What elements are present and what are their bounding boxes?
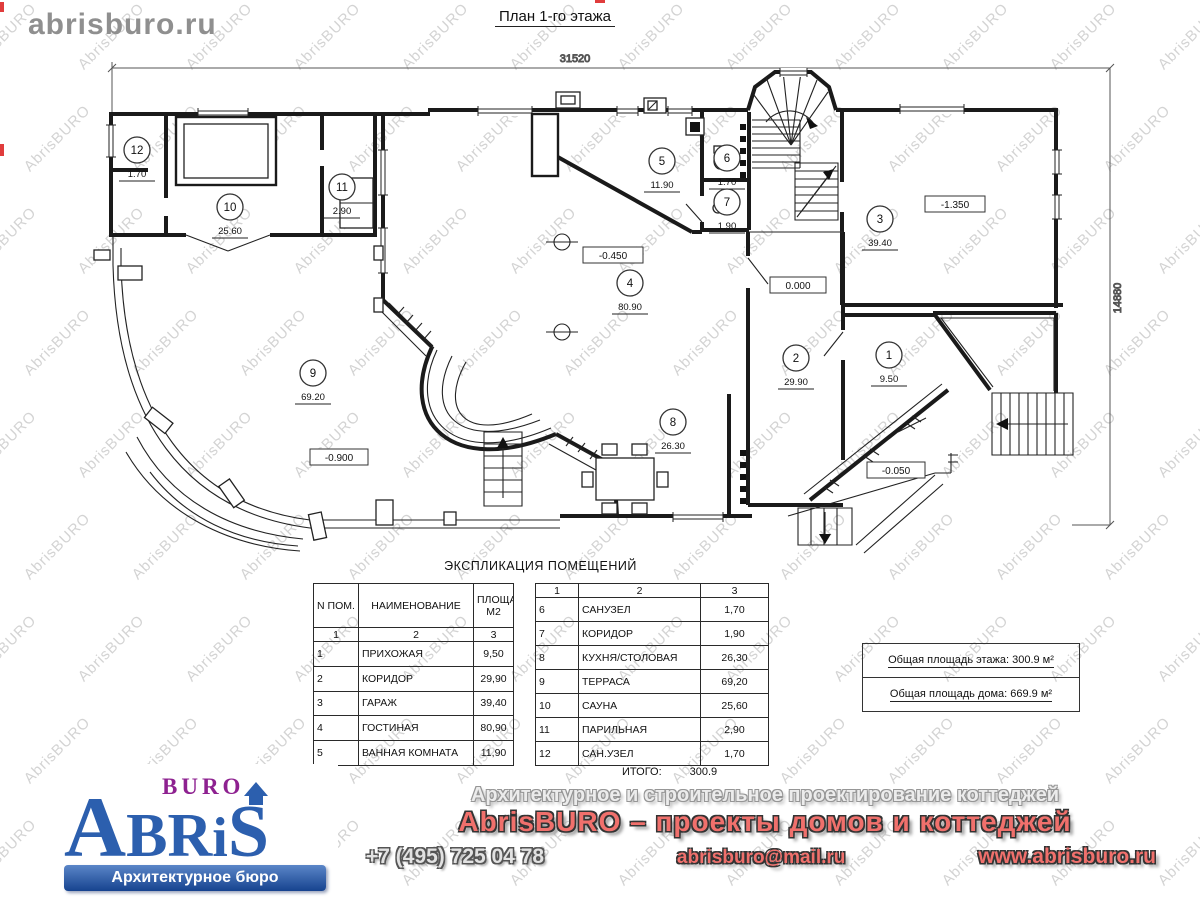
svg-text:69.20: 69.20 [301, 392, 325, 403]
table-total: ИТОГО: 300.9 [622, 766, 717, 778]
svg-text:4: 4 [627, 278, 634, 290]
level-mark: -0.900 [310, 449, 368, 465]
abris-logo: BURO ABRiS Архитектурное бюро [60, 764, 338, 894]
svg-text:0.000: 0.000 [785, 281, 810, 292]
svg-text:25.60: 25.60 [218, 226, 242, 237]
svg-text:9: 9 [310, 368, 316, 380]
table-row: 12 САН.УЗЕЛ 1,70 [536, 742, 769, 766]
fireplace-pier [532, 114, 558, 176]
svg-text:1.90: 1.90 [718, 221, 737, 232]
watermark-text: AbrisBURO [0, 612, 40, 685]
room-label-1: 1 9.50 [871, 342, 907, 386]
watermark-text: AbrisBURO [1155, 612, 1200, 685]
svg-text:8: 8 [670, 417, 676, 429]
svg-text:80.90: 80.90 [618, 302, 642, 313]
total-value: 300.9 [690, 766, 718, 778]
dining-table [596, 458, 654, 500]
table-row: 9 ТЕРРАСА 69,20 [536, 670, 769, 694]
svg-text:-0.050: -0.050 [882, 466, 911, 477]
table-row: 6 САНУЗЕЛ 1,70 [536, 598, 769, 622]
house-roof-icon [244, 782, 268, 796]
svg-text:1.70: 1.70 [718, 177, 737, 188]
col-header: ПЛОЩАДЬ М2 [474, 584, 514, 628]
svg-text:1: 1 [886, 350, 892, 362]
table-row: 8 КУХНЯ/СТОЛОВАЯ 26,30 [536, 646, 769, 670]
floor-area-box: Общая площадь этажа: 300.9 м² [863, 644, 1079, 677]
svg-text:3: 3 [877, 214, 883, 226]
watermark-text: AbrisBURO [1101, 714, 1174, 787]
total-label: ИТОГО: [622, 766, 662, 778]
house-body-icon [249, 796, 263, 805]
room-label-8: 8 26.30 [655, 409, 691, 453]
svg-text:11.90: 11.90 [650, 180, 673, 191]
table-row: 2 КОРИДОР 29,90 [314, 666, 514, 691]
watermark-text: AbrisBURO [885, 714, 958, 787]
svg-text:-1.350: -1.350 [941, 200, 970, 211]
svg-text:1.70: 1.70 [128, 169, 147, 180]
room-label-3: 3 39.40 [862, 206, 898, 250]
floor-plan: 31520 14880 [0, 0, 1200, 556]
room-label-12: 12 1.70 [119, 137, 155, 181]
col-header: N ПОМ. [314, 584, 359, 628]
dimension-right: 14880 [1112, 283, 1124, 314]
footer-brand-line: AbrisBURO – проекты домов и коттеджей [330, 806, 1200, 838]
table-row: 10 САУНА 25,60 [536, 694, 769, 718]
svg-text:12: 12 [131, 145, 144, 157]
room-label-4: 4 80.90 [612, 270, 648, 314]
level-mark: -0.050 [867, 462, 925, 478]
house-area-box: Общая площадь дома: 669.9 м² [863, 677, 1079, 711]
level-mark: 0.000 [770, 277, 826, 293]
svg-text:29.90: 29.90 [784, 377, 808, 388]
terrace-posts [94, 246, 456, 540]
room-label-5: 5 11.90 [644, 148, 680, 192]
website-url: www.abrisburo.ru [978, 845, 1156, 869]
footer-slogan: Архитектурное и строительное проектирова… [330, 784, 1200, 807]
svg-text:2: 2 [793, 353, 799, 365]
svg-text:-0.900: -0.900 [325, 453, 354, 464]
footer-contacts: +7 (495) 725 04 78 abrisburo@mail.ru www… [366, 845, 1156, 869]
svg-text:6: 6 [724, 153, 730, 165]
explication-title: ЭКСПЛИКАЦИЯ ПОМЕЩЕНИЙ [313, 559, 768, 573]
svg-text:39.40: 39.40 [868, 238, 892, 249]
watermark-text: AbrisBURO [75, 612, 148, 685]
explication-table-left: N ПОМ. НАИМЕНОВАНИЕ ПЛОЩАДЬ М2 1 2 3 1 П… [313, 583, 514, 766]
table-row: 11 ПАРИЛЬНАЯ 2,90 [536, 718, 769, 742]
email-address: abrisburo@mail.ru [677, 847, 845, 869]
reg-mark [0, 2, 4, 12]
svg-text:7: 7 [724, 197, 730, 209]
reg-mark [595, 0, 605, 3]
table-row: 3 ГАРАЖ 39,40 [314, 691, 514, 716]
watermark-text: AbrisBURO [183, 612, 256, 685]
svg-text:9.50: 9.50 [880, 374, 899, 385]
dimension-top: 31520 [560, 53, 591, 65]
area-summary: Общая площадь этажа: 300.9 м² Общая площ… [862, 643, 1080, 712]
table-row: 7 КОРИДОР 1,90 [536, 622, 769, 646]
logo-buro-text: BURO [162, 774, 244, 800]
phone-number: +7 (495) 725 04 78 [366, 845, 544, 869]
logo-tagline-banner: Архитектурное бюро [64, 865, 326, 891]
svg-text:11: 11 [336, 182, 348, 194]
watermark-text: AbrisBURO [0, 816, 40, 889]
reg-mark [0, 144, 4, 156]
table-row: 4 ГОСТИНАЯ 80,90 [314, 716, 514, 741]
table-row: 5 ВАННАЯ КОМНАТА 11,90 [314, 741, 514, 766]
watermark-text: AbrisBURO [777, 714, 850, 787]
col-header: НАИМЕНОВАНИЕ [359, 584, 474, 628]
explication-table-right: 1 2 3 6 САНУЗЕЛ 1,70 7 КОРИДОР 1,90 8 КУ… [535, 583, 769, 766]
level-mark: -1.350 [925, 196, 985, 212]
svg-text:5: 5 [659, 156, 665, 168]
stairs [484, 71, 1073, 545]
table-row: 1 ПРИХОЖАЯ 9,50 [314, 642, 514, 667]
svg-text:26.30: 26.30 [661, 441, 685, 452]
svg-text:10: 10 [224, 202, 237, 214]
watermark-text: AbrisBURO [993, 714, 1066, 787]
room-label-9: 9 69.20 [295, 360, 331, 404]
room-label-2: 2 29.90 [778, 345, 814, 389]
svg-text:2.90: 2.90 [333, 206, 352, 217]
svg-text:-0.450: -0.450 [599, 251, 628, 262]
room-label-10: 10 25.60 [212, 194, 248, 238]
level-mark: -0.450 [583, 247, 643, 263]
